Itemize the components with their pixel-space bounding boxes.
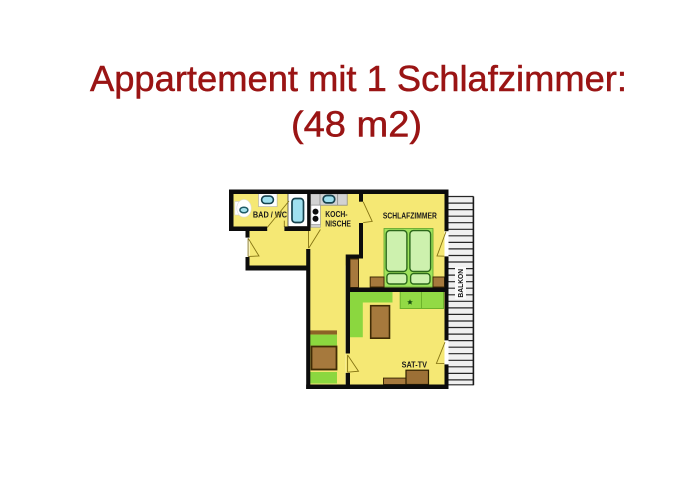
svg-text:(48 m2): (48 m2) xyxy=(291,104,422,145)
svg-text:SAT-TV: SAT-TV xyxy=(402,359,428,369)
svg-text:NISCHE: NISCHE xyxy=(325,219,351,229)
svg-text:KOCH-: KOCH- xyxy=(325,209,348,219)
svg-text:BALKON: BALKON xyxy=(456,269,465,298)
svg-text:Appartement mit 1 Schlafzimmer: Appartement mit 1 Schlafzimmer: xyxy=(90,58,627,99)
svg-text:SCHLAFZIMMER: SCHLAFZIMMER xyxy=(383,210,437,220)
svg-text:BAD / WC: BAD / WC xyxy=(253,209,287,219)
